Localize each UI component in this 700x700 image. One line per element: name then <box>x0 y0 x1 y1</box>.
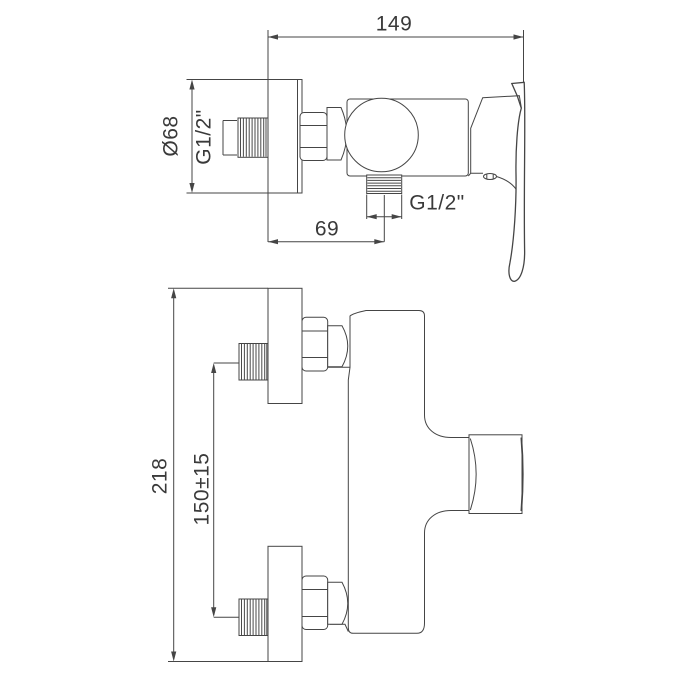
wall-nipple <box>238 118 268 157</box>
wall-nipple-top <box>239 344 268 381</box>
eccentric-cone <box>327 108 347 161</box>
mixer-body-column <box>348 311 469 634</box>
escutcheon-plate-top <box>268 288 302 403</box>
dimension-total-depth <box>268 30 524 90</box>
ball-joint <box>345 98 419 172</box>
label-inlet-spacing: 150±15 <box>192 453 213 526</box>
shower-outlet <box>367 175 402 194</box>
handle-cap <box>469 435 523 514</box>
label-total-height: 218 <box>150 458 171 495</box>
label-outlet-offset: 69 <box>315 219 339 240</box>
top-view <box>187 30 525 281</box>
wall-nipple-bottom <box>239 599 268 636</box>
side-view <box>168 288 523 661</box>
label-inlet-thread: G1/2" <box>194 109 215 164</box>
technical-drawing-canvas: 149 Ø68 G1/2" 69 G1/2" 218 150±15 <box>0 0 700 700</box>
cartridge-bonnet <box>468 96 521 190</box>
label-total-depth: 149 <box>376 14 413 35</box>
dimension-inlet-spacing <box>211 363 239 617</box>
escutcheon-plate <box>268 80 302 194</box>
set-screw <box>484 174 497 180</box>
label-escutcheon-diameter: Ø68 <box>161 115 182 156</box>
eccentric-cone-top <box>328 326 348 367</box>
eccentric-cone-bottom <box>328 582 348 624</box>
hex-nut-bottom <box>302 576 328 630</box>
label-outlet-thread: G1/2" <box>409 193 464 214</box>
hex-nut <box>300 113 327 161</box>
escutcheon-plate-bottom <box>268 546 302 661</box>
dimension-inlet-thread-bracket <box>223 121 237 156</box>
handle-lever-blade <box>509 82 525 281</box>
drawing-linework <box>0 0 700 700</box>
hex-nut-top <box>302 317 328 371</box>
